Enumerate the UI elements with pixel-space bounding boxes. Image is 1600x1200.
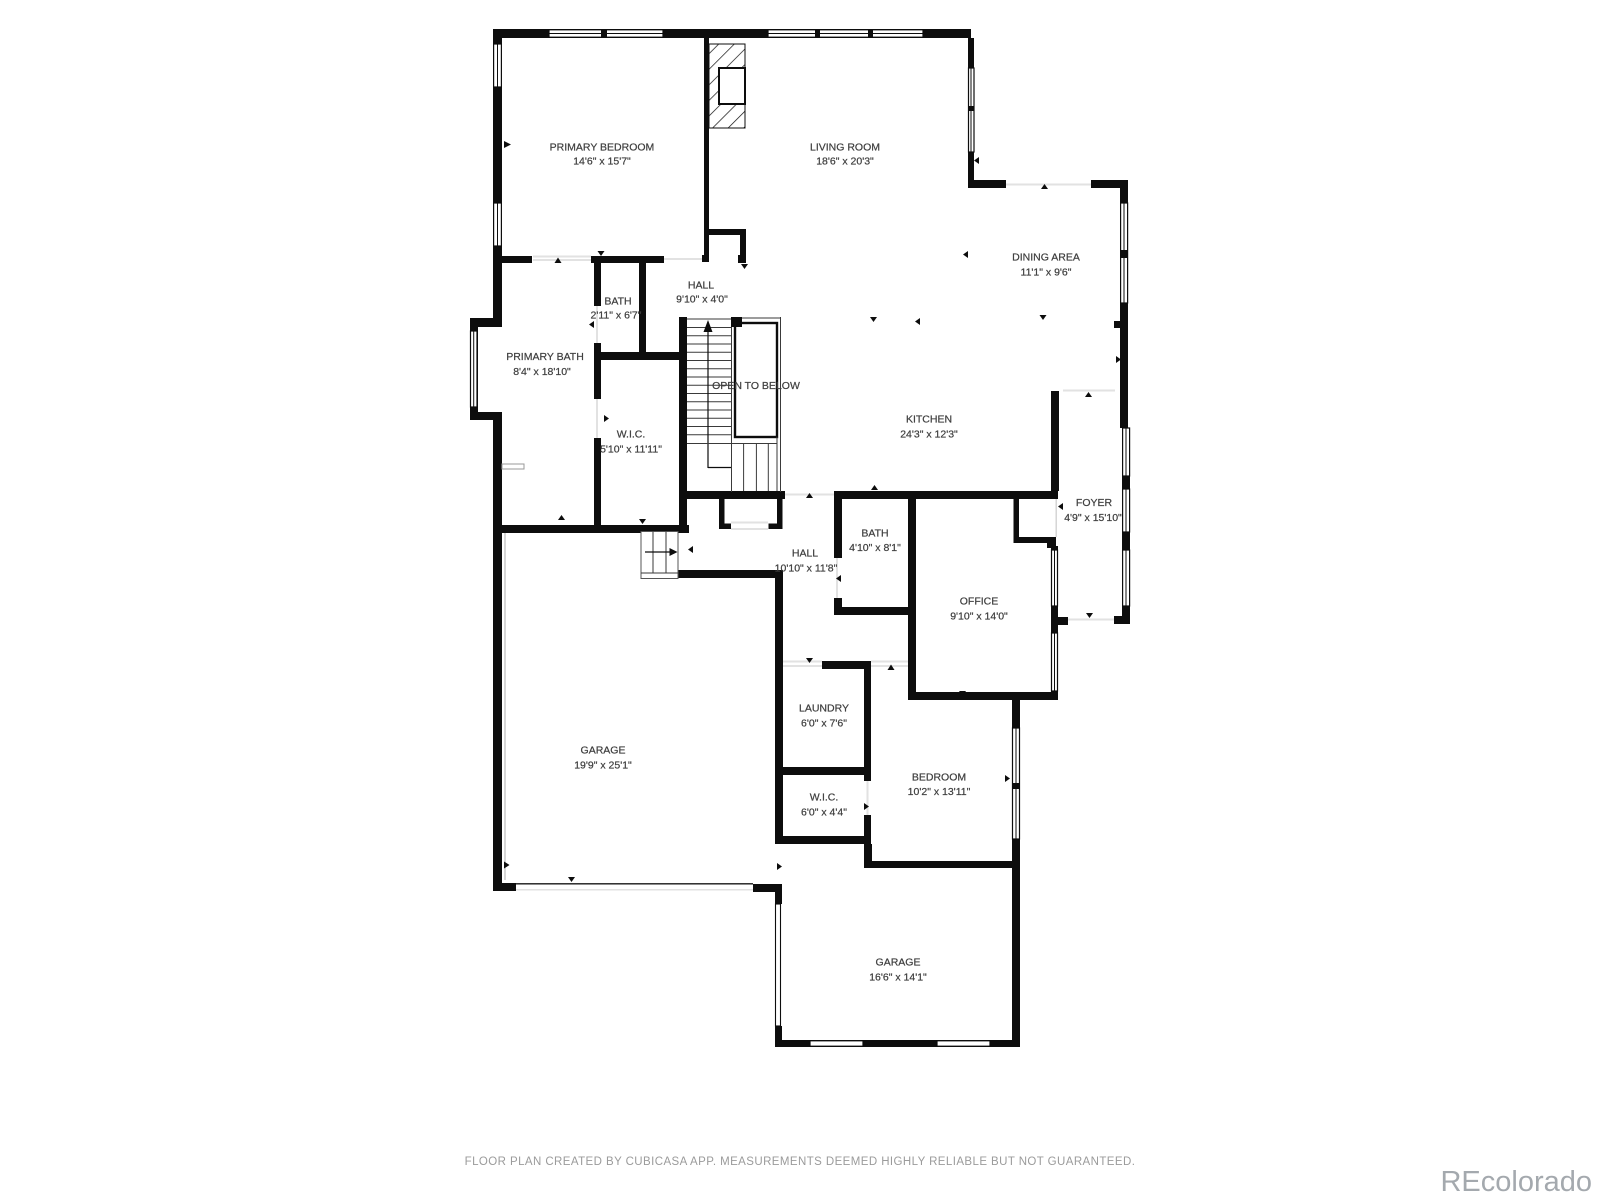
svg-text:11'1" x 9'6": 11'1" x 9'6" [1021,267,1072,279]
svg-text:16'6" x 14'1": 16'6" x 14'1" [869,972,927,984]
svg-text:HALL: HALL [688,280,714,292]
svg-text:OPEN TO BELOW: OPEN TO BELOW [712,380,800,392]
svg-text:9'10" x 4'0": 9'10" x 4'0" [676,294,728,306]
svg-text:4'9" x 15'10": 4'9" x 15'10" [1064,512,1122,524]
svg-text:PRIMARY BEDROOM: PRIMARY BEDROOM [550,142,655,154]
svg-text:REcolorado: REcolorado [1440,1166,1592,1198]
svg-text:LIVING ROOM: LIVING ROOM [810,142,880,154]
svg-text:14'6" x 15'7": 14'6" x 15'7" [573,156,631,168]
svg-text:GARAGE: GARAGE [876,957,921,969]
svg-text:BEDROOM: BEDROOM [912,772,966,784]
svg-text:6'0" x 7'6": 6'0" x 7'6" [801,718,847,730]
svg-text:W.I.C.: W.I.C. [810,792,839,804]
svg-text:GARAGE: GARAGE [581,745,626,757]
svg-text:24'3" x 12'3": 24'3" x 12'3" [900,429,958,441]
svg-text:19'9" x 25'1": 19'9" x 25'1" [574,760,632,772]
svg-text:HALL: HALL [792,548,818,560]
svg-text:8'4" x 18'10": 8'4" x 18'10" [513,366,571,378]
svg-text:10'2" x 13'11": 10'2" x 13'11" [908,786,971,798]
svg-text:2'11" x 6'7": 2'11" x 6'7" [591,310,642,322]
svg-text:6'0" x 4'4": 6'0" x 4'4" [801,807,847,819]
svg-text:BATH: BATH [604,296,631,308]
svg-text:LAUNDRY: LAUNDRY [799,703,849,715]
svg-text:W.I.C.: W.I.C. [617,429,646,441]
svg-text:FOYER: FOYER [1076,497,1113,509]
svg-text:10'10" x 11'8": 10'10" x 11'8" [775,563,838,575]
svg-text:DINING AREA: DINING AREA [1012,252,1080,264]
svg-text:4'10" x 8'1": 4'10" x 8'1" [849,542,901,554]
svg-text:FLOOR PLAN CREATED BY CUBICASA: FLOOR PLAN CREATED BY CUBICASA APP. MEAS… [465,1156,1136,1168]
svg-text:18'6" x 20'3": 18'6" x 20'3" [816,156,874,168]
svg-text:BATH: BATH [861,528,888,540]
svg-text:OFFICE: OFFICE [960,596,999,608]
svg-text:PRIMARY BATH: PRIMARY BATH [506,351,584,363]
svg-text:5'10" x 11'11": 5'10" x 11'11" [600,444,662,456]
svg-text:9'10" x 14'0": 9'10" x 14'0" [950,611,1008,623]
svg-text:KITCHEN: KITCHEN [906,414,952,426]
